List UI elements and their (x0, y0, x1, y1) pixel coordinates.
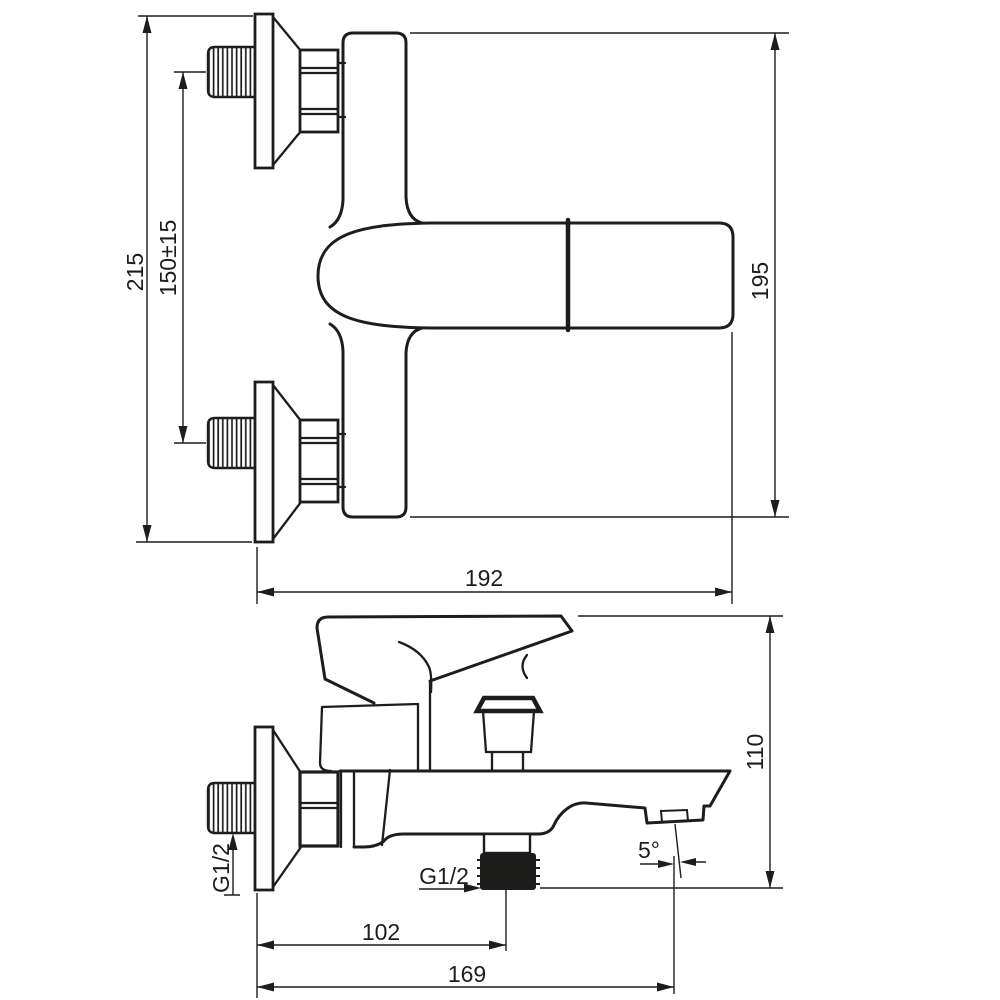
g12-outlet-label: G1/2 (419, 863, 469, 889)
dim-195-label: 195 (747, 262, 773, 300)
drawing-canvas: 215 150±15 195 192 (0, 0, 1000, 1000)
side-view: 110 5° 102 169 G1/2 (208, 616, 783, 998)
side-lever (317, 616, 572, 771)
dim-110-label: 110 (742, 734, 768, 771)
label-outlet-thread: G1/2 (419, 863, 481, 893)
side-diverter-knob (477, 698, 540, 770)
front-handle (318, 220, 733, 330)
body-flange-rings (341, 772, 354, 847)
dim-150-label: 150±15 (155, 220, 181, 297)
escutcheon-plate (255, 727, 273, 890)
label-inlet-thread: G1/2 (208, 833, 240, 895)
outlet-thread (480, 853, 536, 890)
dim-215-label: 215 (122, 253, 148, 291)
outlet-collar (484, 834, 530, 853)
front-upper-inlet-connector (208, 14, 345, 168)
lever-small-arc (523, 655, 528, 678)
body-cone-edge (382, 770, 390, 845)
dim-5deg-label: 5° (638, 837, 660, 863)
diverter-cap (477, 698, 540, 711)
side-shower-outlet (477, 834, 540, 890)
dim-169-label: 169 (448, 961, 486, 987)
faucet-dimension-drawing: 215 150±15 195 192 (0, 0, 1000, 1000)
diverter-body (483, 711, 534, 752)
dim-192-label: 192 (465, 565, 503, 591)
lever-thumb-curve (399, 642, 431, 692)
threaded-pipe (208, 47, 256, 97)
front-view: 215 150±15 195 192 (122, 14, 789, 604)
handle-cap (318, 223, 567, 328)
escutcheon-cone (273, 17, 301, 165)
side-body-spout (340, 770, 730, 847)
dim-102-label: 102 (362, 919, 400, 945)
escutcheon-plate (255, 382, 273, 542)
spout-outline (340, 771, 730, 847)
front-lower-inlet-connector (208, 382, 345, 542)
lever-left-edge (317, 628, 374, 703)
mounting-nut (300, 420, 338, 502)
mounting-nut (300, 50, 338, 132)
escutcheon-cone (273, 385, 301, 539)
dim-spout-angle: 5° (638, 824, 706, 994)
g12-inlet-label: G1/2 (208, 843, 234, 893)
front-body (330, 33, 422, 517)
dim-spout-height: 110 (540, 616, 783, 888)
body-right-edge (406, 43, 422, 507)
threaded-pipe (208, 418, 256, 468)
lever-outline (317, 616, 572, 681)
escutcheon-plate (255, 14, 273, 168)
dim-spout-reach: 169 (257, 961, 674, 992)
body-bottom (343, 507, 406, 517)
escutcheon-cone (273, 730, 301, 887)
diverter-stem (492, 752, 523, 770)
body-top (343, 33, 406, 43)
handle-lever (569, 223, 733, 328)
threaded-pipe (208, 783, 256, 833)
dim-inlet-spacing: 150±15 (155, 72, 206, 443)
cap-housing (320, 681, 430, 771)
